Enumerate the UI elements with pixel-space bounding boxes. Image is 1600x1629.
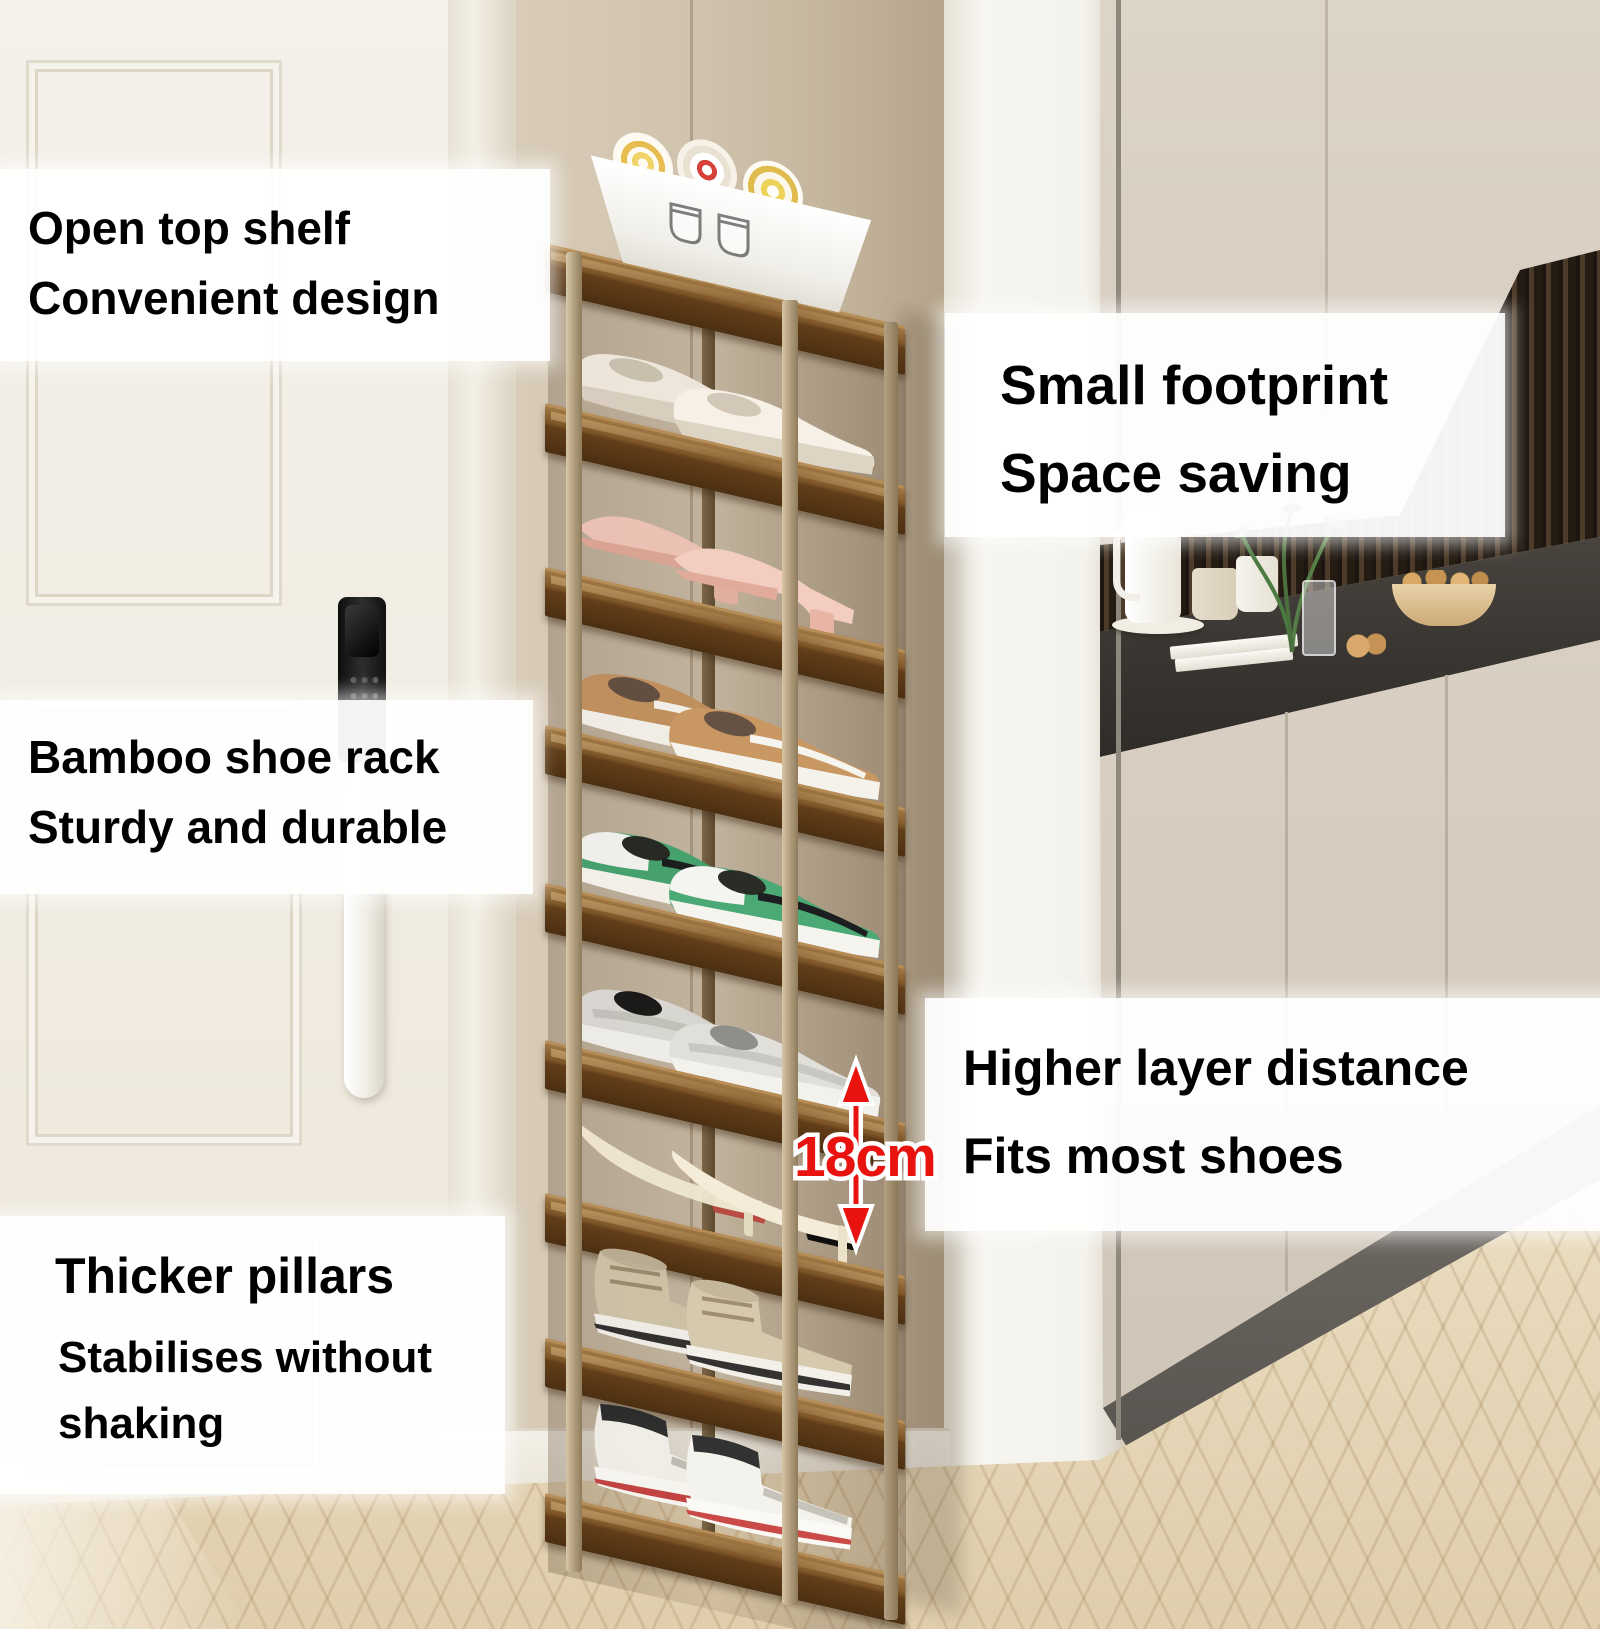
annotation-small-footprint: Small footprint Space saving [945,313,1505,537]
vase [1302,580,1336,656]
measure-label: 18cm [794,1125,936,1189]
annotation-line: Bamboo shoe rack [28,722,533,792]
annotation-line: Higher layer distance [963,1024,1600,1112]
lock-reader [345,605,379,657]
annotation-line: Open top shelf [28,193,550,263]
rack-pillar [884,322,898,1620]
measure-arrow-down-icon [840,1206,872,1250]
annotation-line: Stabilises without [0,1322,505,1394]
annotation-line: Sturdy and durable [28,792,533,862]
annotation-layer-distance: Higher layer distance Fits most shoes [925,998,1600,1231]
annotation-line: shaking [0,1394,505,1454]
rack-pillar [566,252,582,1572]
annotation-open-top-shelf: Open top shelf Convenient design [0,169,550,361]
annotation-line: Small footprint [1000,341,1505,429]
layer-height-measurement: 18cm [752,1052,992,1258]
annotation-line: Convenient design [28,263,550,333]
rack-pillar [782,300,798,1605]
socks-icon [657,197,777,281]
annotation-line: Space saving [1000,429,1505,517]
annotation-line: Thicker pillars [0,1244,505,1308]
annotation-bamboo-rack: Bamboo shoe rack Sturdy and durable [0,700,533,894]
nut-bowl [1392,570,1496,626]
annotation-thicker-pillars: Thicker pillars Stabilises without shaki… [0,1216,505,1494]
product-marketing-image: Open top shelf Convenient design Small f… [0,0,1600,1629]
measure-arrow-up-icon [840,1060,872,1104]
annotation-line: Fits most shoes [963,1112,1600,1200]
small-fruits [1346,632,1386,658]
